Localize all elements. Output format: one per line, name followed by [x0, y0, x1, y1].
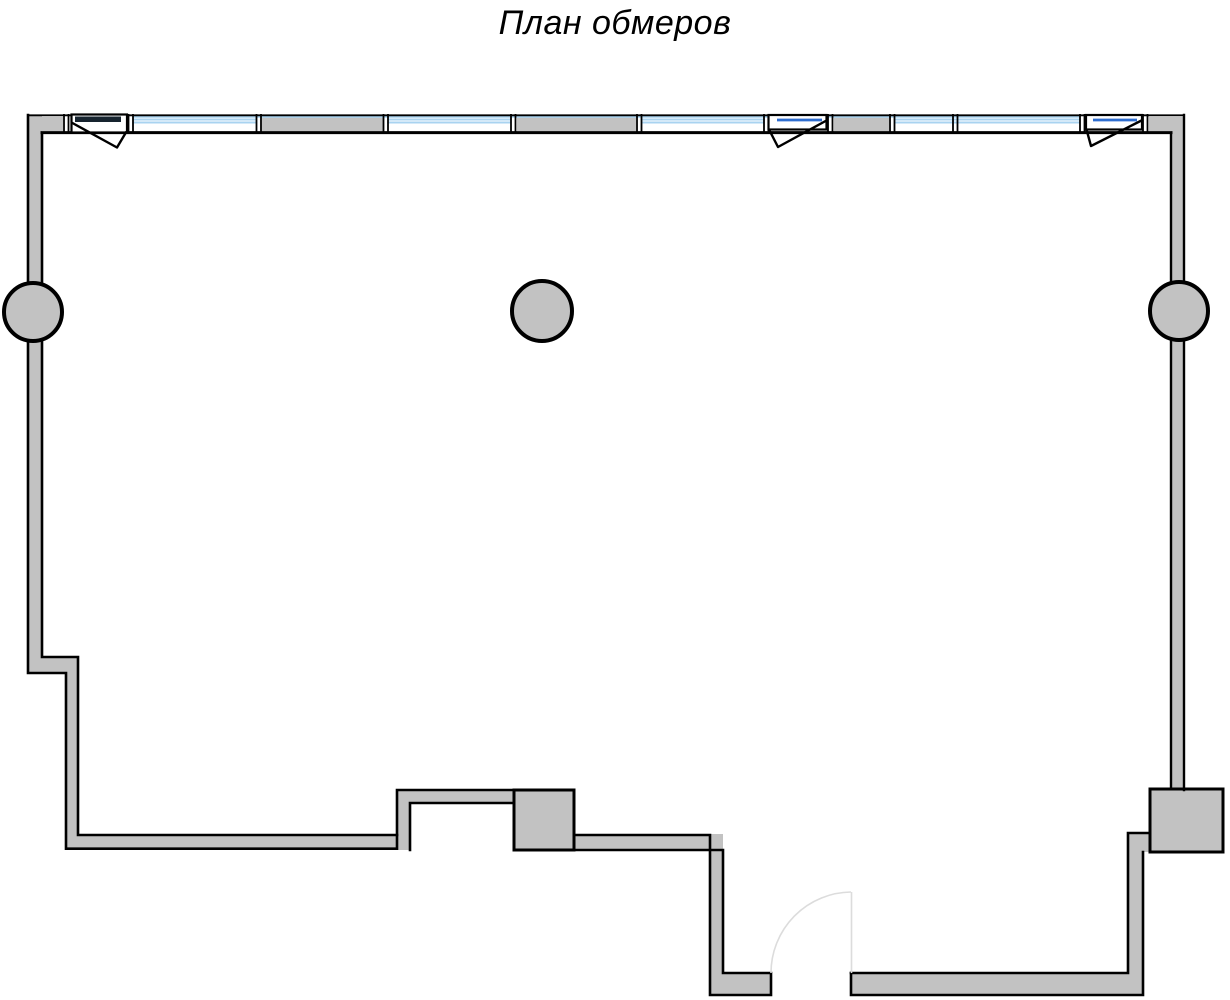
bottom-wall-mid [574, 834, 723, 850]
pilaster-square-right [1150, 789, 1223, 852]
casement-symbol-left [72, 115, 128, 148]
floor-plan-drawing [0, 0, 1230, 1000]
bump-top-wall [397, 790, 514, 803]
right-wall [1171, 117, 1184, 790]
jamb-2 [129, 114, 134, 134]
column-right [1150, 282, 1208, 340]
corridor-jog [1128, 833, 1150, 852]
column-left [4, 283, 62, 341]
jamb-1 [64, 114, 69, 134]
casement-symbol-middle [769, 115, 827, 147]
column-center [512, 281, 572, 341]
wall-outlines [28, 115, 1223, 995]
pilaster-square-center [514, 790, 574, 850]
wall-fills [28, 115, 1223, 995]
top-pier-5 [1149, 117, 1184, 131]
bottom-wall-east [851, 973, 1143, 995]
jamb-11 [1080, 114, 1085, 134]
sash-pane-left [75, 117, 121, 123]
bump-inner-contour [410, 803, 514, 850]
casement-symbol-right [1086, 115, 1142, 146]
corridor-wall-right [1128, 833, 1143, 995]
door-arc [771, 892, 851, 973]
corridor-wall-left [710, 834, 723, 995]
top-pier-1 [28, 117, 63, 131]
door-swing [771, 892, 852, 973]
floor-plan-page: План обмеров [0, 0, 1230, 1000]
left-bottom-outer-contour [28, 115, 514, 849]
top-pier-4 [834, 117, 889, 131]
top-pier-2 [262, 117, 383, 131]
bottom-east-contour-b [851, 833, 1150, 973]
bottom-mid-corridor-contour [574, 835, 771, 995]
jamb-12 [1143, 114, 1148, 134]
round-columns [4, 281, 1208, 341]
left-wall-upper [28, 115, 42, 673]
bump-left-wall [397, 790, 410, 850]
corridor-stub [710, 973, 771, 995]
top-pier-3 [517, 117, 636, 131]
left-wall-lower [66, 657, 78, 850]
left-bottom-inner-contour [42, 133, 397, 835]
